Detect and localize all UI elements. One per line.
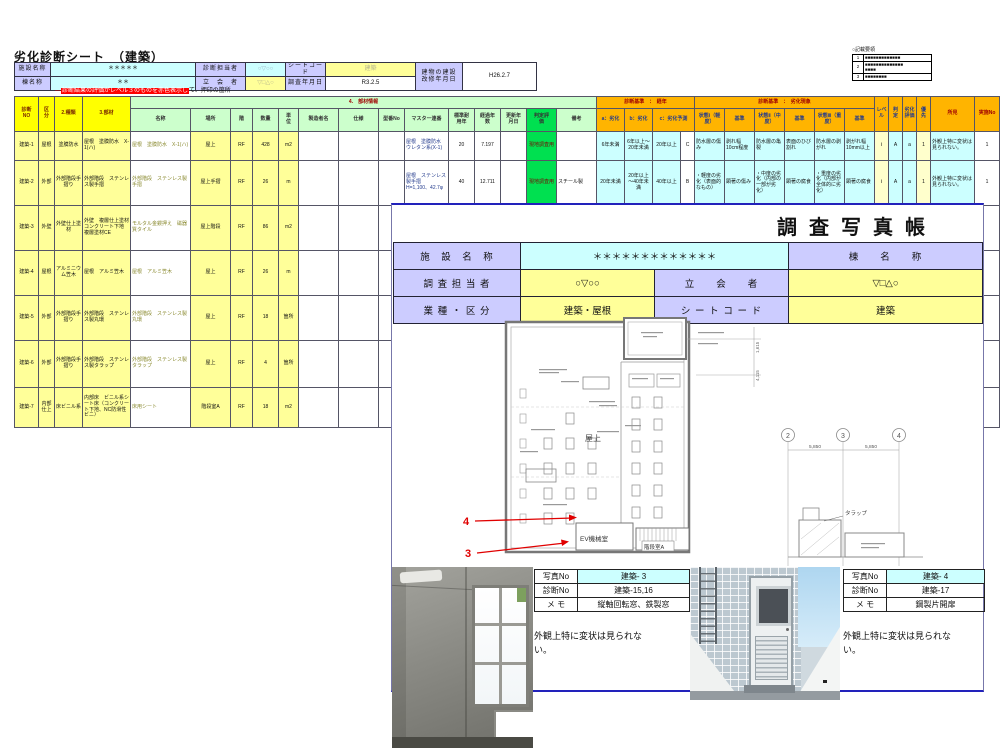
table-cell: Ⅰ xyxy=(875,132,889,161)
photo-sheet-title: 調査写真帳 xyxy=(732,211,982,240)
table-cell: 階段室A xyxy=(191,388,231,428)
table-cell xyxy=(339,388,379,428)
table-cell: 26 xyxy=(253,161,279,206)
column-header: 判定評 価 xyxy=(527,109,557,132)
table-cell: 建築-6 xyxy=(15,341,39,388)
sheet1-info-table: 施設名称 ＊＊＊＊＊ 診断担当者 ○▽○○ シートコード 建築 建物の建設 改修… xyxy=(14,62,537,91)
table-cell: RF xyxy=(231,296,253,341)
table-cell: 建築-4 xyxy=(15,251,39,296)
ev-room-label: EV機械室 xyxy=(580,534,609,543)
column-header: 階 xyxy=(231,109,253,132)
facility-value[interactable]: ＊＊＊＊＊ xyxy=(51,63,196,77)
table-cell: 1 xyxy=(917,132,931,161)
dimension-1615: 1,615 xyxy=(755,341,760,353)
photo-no-value[interactable]: 建築- 3 xyxy=(578,570,690,584)
tree-through-window xyxy=(517,588,526,602)
table-cell: 顕著の傷み xyxy=(725,161,755,206)
photo-no-label: 写真No xyxy=(535,570,578,584)
table-cell: 26 xyxy=(253,251,279,296)
column-header: マスター連番 xyxy=(405,109,449,132)
table-cell xyxy=(299,296,339,341)
facility-value[interactable]: ＊＊＊＊＊＊＊＊＊＊＊＊＊ xyxy=(521,243,789,270)
pivot-window xyxy=(472,585,529,707)
legend-text: ■■■■■■■■■■■■■■ ■■■■ xyxy=(864,61,932,73)
table-cell xyxy=(379,161,405,206)
grid-bubble-4: 4 xyxy=(897,433,901,440)
legend-no: 2 xyxy=(853,61,864,73)
door-knob xyxy=(786,628,789,631)
surveyor-value[interactable]: ○▽○○ xyxy=(521,270,655,297)
table-cell: 18 xyxy=(253,296,279,341)
column-header: 仕様 xyxy=(339,109,379,132)
table-cell xyxy=(557,132,597,161)
table-cell: 剥れ幅10cm程度 xyxy=(725,132,755,161)
table-cell xyxy=(339,251,379,296)
table-cell: ・中度の劣化（内部の一部が劣化） xyxy=(755,161,785,206)
table-cell: 屋根 塗膜防水 X-1(ハ) xyxy=(131,132,191,161)
table-cell: 現地調査用 xyxy=(527,132,557,161)
legend-table: 1 ■■■■■■■■■■■■■ 2 ■■■■■■■■■■■■■■ ■■■■ 3 … xyxy=(852,54,932,81)
table-cell: A xyxy=(889,132,903,161)
surveyor-label: 調 査 担 当 者 xyxy=(394,270,521,297)
door-louver xyxy=(755,636,788,680)
column-group-header: 実施No xyxy=(975,97,1000,132)
table-cell: モルタル金鏝押え 磁器質タイル xyxy=(131,206,191,251)
table-cell: 外観上特に変状は見られない。 xyxy=(931,132,975,161)
table-cell: 建築-5 xyxy=(15,296,39,341)
column-header: 場所 xyxy=(191,109,231,132)
facility-label: 施 設 名 称 xyxy=(394,243,521,270)
column-header: 備考 xyxy=(557,109,597,132)
sky xyxy=(798,567,840,647)
diag-no-value[interactable]: 建築-15,16 xyxy=(578,584,690,598)
table-cell: m xyxy=(279,161,299,206)
table-cell: B xyxy=(681,161,695,206)
table-cell xyxy=(299,251,339,296)
table-cell: 現地調査用 xyxy=(527,161,557,206)
steel-door xyxy=(749,576,794,690)
table-cell: 12.711 xyxy=(475,161,501,206)
building-name-label: 棟 名 称 xyxy=(789,243,983,270)
photo2-comment: 外観上特に変状は見られない。 xyxy=(843,630,967,657)
table-cell: 屋上 xyxy=(191,296,231,341)
table-cell: m2 xyxy=(279,132,299,161)
column-group-header: 劣化 評価 xyxy=(903,97,917,132)
grid-bubble-3: 3 xyxy=(841,433,845,440)
column-header: 状態Ⅱ（中 度） xyxy=(755,109,785,132)
table-cell: C xyxy=(681,132,695,161)
column-header: 基準 xyxy=(785,109,815,132)
column-header: 単 位 xyxy=(279,109,299,132)
table-cell: 18 xyxy=(253,388,279,428)
legend: ○記載要領 1 ■■■■■■■■■■■■■ 2 ■■■■■■■■■■■■■■ ■… xyxy=(852,46,932,81)
table-cell: 40 xyxy=(449,161,475,206)
table-cell: 外壁仕上塗材 xyxy=(55,206,83,251)
drain-vent xyxy=(823,680,827,683)
marker-3-label: 3 xyxy=(465,548,471,560)
sheetcode-value[interactable]: 建築 xyxy=(326,63,416,77)
table-cell: 外部階段 ステンレス製手摺 xyxy=(83,161,131,206)
floor xyxy=(392,737,533,748)
table-cell: 建築-1 xyxy=(15,132,39,161)
table-cell: A xyxy=(889,161,903,206)
table-cell: m2 xyxy=(279,206,299,251)
diag-no-value[interactable]: 建築-17 xyxy=(887,584,985,598)
table-cell: 箇所 xyxy=(279,296,299,341)
column-group-header: 3.部材 xyxy=(83,97,131,132)
table-cell: 屋根 ステンレス製手摺 H=1,100、42.7φ xyxy=(405,161,449,206)
table-cell: スチール製 xyxy=(557,161,597,206)
table-cell: 外部階段 ステンレス製丸環 xyxy=(131,296,191,341)
table-cell: 防水層の亀裂 xyxy=(755,132,785,161)
column-group-header: 優 先 xyxy=(917,97,931,132)
table-cell: 防水層の傷み xyxy=(695,132,725,161)
table-cell xyxy=(339,206,379,251)
table-cell: 剥がれ幅10mm以上 xyxy=(845,132,875,161)
facility-label: 施設名称 xyxy=(15,63,51,77)
wall-corner xyxy=(465,567,467,748)
tarappu-label: タラップ xyxy=(845,509,868,517)
photo1-comment: 外観上特に変状は見られない。 xyxy=(534,630,658,657)
photo1-caption-table: 写真No 建築- 3 診断No 建築-15,16 メ モ 縦軸回転窓、鉄製窓 xyxy=(534,569,690,612)
table-cell: RF xyxy=(231,161,253,206)
table-cell xyxy=(299,341,339,388)
table-cell xyxy=(299,388,339,428)
table-cell: 屋根 塗膜防水 X-1(ハ) xyxy=(83,132,131,161)
table-cell: 外部階段 ステンレス製丸環 xyxy=(83,296,131,341)
table-cell xyxy=(501,132,527,161)
table-cell: ・軽度の劣化（表面的なもの） xyxy=(695,161,725,206)
table-cell: 外壁 複層仕上塗材 コンクリート下地 複層塗材CE xyxy=(83,206,131,251)
table-cell: 床用シート xyxy=(131,388,191,428)
column-header: 数量 xyxy=(253,109,279,132)
page: 劣化診断シート （建築） 施設名称 ＊＊＊＊＊ 診断担当者 ○▽○○ シートコー… xyxy=(0,0,1000,750)
table-cell: 20年未満 xyxy=(597,161,625,206)
table-cell: 外部階段 ステンレス製タラップ xyxy=(131,341,191,388)
column-header: 基準 xyxy=(845,109,875,132)
column-header: 名称 xyxy=(131,109,191,132)
table-cell: 外部階段手摺り xyxy=(55,296,83,341)
table-cell: 外部 xyxy=(39,296,55,341)
column-header: 型番No xyxy=(379,109,405,132)
table-cell xyxy=(501,161,527,206)
table-cell: 内部仕上 xyxy=(39,388,55,428)
sheetcode-label: シートコード xyxy=(286,63,326,77)
column-header: 状態Ⅰ（軽 度） xyxy=(695,109,725,132)
table-cell: 箇所 xyxy=(279,341,299,388)
table-cell: 86 xyxy=(253,206,279,251)
table-cell xyxy=(339,132,379,161)
door-window xyxy=(756,586,791,626)
table-cell: 表面のひび割れ xyxy=(785,132,815,161)
column-header: 製造者名 xyxy=(299,109,339,132)
table-cell xyxy=(339,161,379,206)
grid-bubble-2: 2 xyxy=(786,433,790,440)
dimension-5850-a: 5,850 xyxy=(809,444,821,450)
table-cell: 内部床 ビニル系シート床（コンクリート下地、NC防滑性ビニ） xyxy=(83,388,131,428)
column-group-header: 2.種類 xyxy=(55,97,83,132)
table-cell: 屋上手摺 xyxy=(191,161,231,206)
table-cell: m2 xyxy=(279,388,299,428)
column-header: 標準耐 用年 xyxy=(449,109,475,132)
table-cell: RF xyxy=(231,388,253,428)
column-group-header: 診断 NO xyxy=(15,97,39,132)
surveyor-label: 診断担当者 xyxy=(196,63,246,77)
table-cell: 外部階段手摺り xyxy=(55,161,83,206)
column-header: 経過年 数 xyxy=(475,109,501,132)
table-cell: 屋根 xyxy=(39,132,55,161)
photo-no-value[interactable]: 建築- 4 xyxy=(887,570,985,584)
memo-label: メ モ xyxy=(844,598,887,612)
column-group-header: 診断基準 ： 劣化現象 xyxy=(695,97,875,109)
table-cell: 40年以上 xyxy=(653,161,681,206)
survey-date-label: 調査年月日 xyxy=(286,77,326,91)
legend-no: 1 xyxy=(853,55,864,62)
table-cell: 屋根 アルミ笠木 xyxy=(83,251,131,296)
table-cell: Ⅰ xyxy=(875,161,889,206)
column-header: 基準 xyxy=(725,109,755,132)
table-cell: 屋上 xyxy=(191,341,231,388)
table-cell: 顕著の腐食 xyxy=(785,161,815,206)
column-header: 状態Ⅲ（重 度） xyxy=(815,109,845,132)
table-cell xyxy=(379,132,405,161)
table-cell: 外部階段 ステンレス製タラップ xyxy=(83,341,131,388)
table-cell: 6年以上～20年未満 xyxy=(625,132,653,161)
table-cell: 床ビニル系 xyxy=(55,388,83,428)
witness-label: 立 会 者 xyxy=(655,270,789,297)
table-cell: 1 xyxy=(975,161,1000,206)
table-cell: 1 xyxy=(975,132,1000,161)
memo-value[interactable]: 縦軸回転窓、鉄製窓 xyxy=(578,598,690,612)
diag-no-label: 診断No xyxy=(535,584,578,598)
column-group-header: 区 分 xyxy=(39,97,55,132)
table-cell: 外観上特に変状は見られない。 xyxy=(931,161,975,206)
table-cell: a xyxy=(903,132,917,161)
surveyor-value[interactable]: ○▽○○ xyxy=(246,63,286,77)
photo2-caption-table: 写真No 建築- 4 診断No 建築-17 メ モ 鋼製片開扉 xyxy=(843,569,985,612)
door-step xyxy=(744,685,795,693)
note-red-text: 診断結果の評価がレベル３のものを赤色表示し xyxy=(61,88,189,94)
table-cell: 屋上 xyxy=(191,132,231,161)
table-cell: 外壁 xyxy=(39,206,55,251)
photo-no-label: 写真No xyxy=(844,570,887,584)
photo-rooftop-door xyxy=(690,567,840,700)
table-cell: 外部 xyxy=(39,341,55,388)
built-date-label: 建物の建設 改修年月日 xyxy=(416,63,463,91)
table-cell: 1 xyxy=(917,161,931,206)
column-header: a：劣化 xyxy=(597,109,625,132)
photo-sheet-header-table: 施 設 名 称 ＊＊＊＊＊＊＊＊＊＊＊＊＊ 棟 名 称 調 査 担 当 者 ○▽… xyxy=(393,242,983,324)
table-cell xyxy=(339,341,379,388)
table-cell: 顕著の腐食 xyxy=(845,161,875,206)
table-cell: 外部 xyxy=(39,161,55,206)
table-cell: 屋根 塗膜防水 ウレタン系(X-1) xyxy=(405,132,449,161)
table-cell: 防水層の剥がれ xyxy=(815,132,845,161)
stair-room-label: 階段室A xyxy=(644,543,665,551)
table-cell: 屋上階段 xyxy=(191,206,231,251)
table-cell: 20 xyxy=(449,132,475,161)
column-group-header: 診断基準 ： 経年 xyxy=(597,97,695,109)
table-cell: 建築-3 xyxy=(15,206,39,251)
memo-label: メ モ xyxy=(535,598,578,612)
column-group-header: 判 定 xyxy=(889,97,903,132)
memo-value[interactable]: 鋼製片開扉 xyxy=(887,598,985,612)
marker-4-label: 4 xyxy=(463,516,470,528)
note-line: ―診断結果の評価がレベル３のものを赤色表示して、押印の箇所 xyxy=(55,88,231,95)
table-cell: ・重度の劣化（内部が全体的に劣化） xyxy=(815,161,845,206)
note-black-text: て、押印の箇所 xyxy=(189,88,231,94)
table-cell: RF xyxy=(231,341,253,388)
table-cell: 20年以上～40年未満 xyxy=(625,161,653,206)
diag-no-label: 診断No xyxy=(844,584,887,598)
column-header: 更新年 月日 xyxy=(501,109,527,132)
table-cell: RF xyxy=(231,132,253,161)
photo-interior-window xyxy=(392,567,533,748)
table-cell: m xyxy=(279,251,299,296)
witness-value[interactable]: ▽□△○ xyxy=(789,270,983,297)
legend-title: ○記載要領 xyxy=(852,46,932,53)
table-cell: 外部階段手摺り xyxy=(55,341,83,388)
table-cell xyxy=(339,296,379,341)
table-cell: 外部階段 ステンレス製手摺 xyxy=(131,161,191,206)
legend-text: ■■■■■■■■■■■■■ xyxy=(864,55,932,62)
ceiling-light xyxy=(400,569,443,583)
column-header: c：劣化予測 xyxy=(653,109,695,132)
table-cell: RF xyxy=(231,251,253,296)
table-cell xyxy=(299,161,339,206)
table-cell: 塗膜防水 xyxy=(55,132,83,161)
table-cell: 屋上 xyxy=(191,251,231,296)
table-cell: 20年以上 xyxy=(653,132,681,161)
rooftop-label: 屋上 xyxy=(585,434,601,443)
table-cell: 428 xyxy=(253,132,279,161)
dimension-5850-b: 5,850 xyxy=(865,444,877,450)
photo1-caption: 写真No 建築- 3 診断No 建築-15,16 メ モ 縦軸回転窓、鉄製窓 外… xyxy=(534,569,690,657)
built-date-value[interactable]: H26.2.7 xyxy=(463,63,537,91)
floor-plan: 屋上 EV機械室 階段室A 4 3 2 3 4 xyxy=(393,317,984,566)
table-cell: 建築-7 xyxy=(15,388,39,428)
table-cell: 建築-2 xyxy=(15,161,39,206)
table-cell: RF xyxy=(231,206,253,251)
column-group-header: 4. 部材情報 xyxy=(131,97,597,109)
table-cell: a xyxy=(903,161,917,206)
dimension-4115: 4,115 xyxy=(755,370,760,381)
column-group-header: 所見 xyxy=(931,97,975,132)
building-label: 棟名称 xyxy=(15,77,51,91)
table-cell: 6年未満 xyxy=(597,132,625,161)
table-cell xyxy=(299,132,339,161)
wall-shade xyxy=(392,567,406,748)
table-cell: 7.197 xyxy=(475,132,501,161)
table-cell xyxy=(299,206,339,251)
photo2-caption: 写真No 建築- 4 診断No 建築-17 メ モ 鋼製片開扉 外観上特に変状は… xyxy=(843,569,985,657)
table-cell: 屋根 アルミ笠木 xyxy=(131,251,191,296)
wall-ladder xyxy=(699,567,717,644)
legend-text: ■■■■■■■■ xyxy=(864,73,932,80)
column-group-header: レベ ル xyxy=(875,97,889,132)
witness-value[interactable]: ▽□△○ xyxy=(246,77,286,91)
table-cell: 4 xyxy=(253,341,279,388)
survey-date-value[interactable]: R3.2.5 xyxy=(326,77,416,91)
table-cell: アルミニウム笠木 xyxy=(55,251,83,296)
table-cell: 屋根 xyxy=(39,251,55,296)
legend-no: 3 xyxy=(853,73,864,80)
column-header: b：劣化 xyxy=(625,109,653,132)
